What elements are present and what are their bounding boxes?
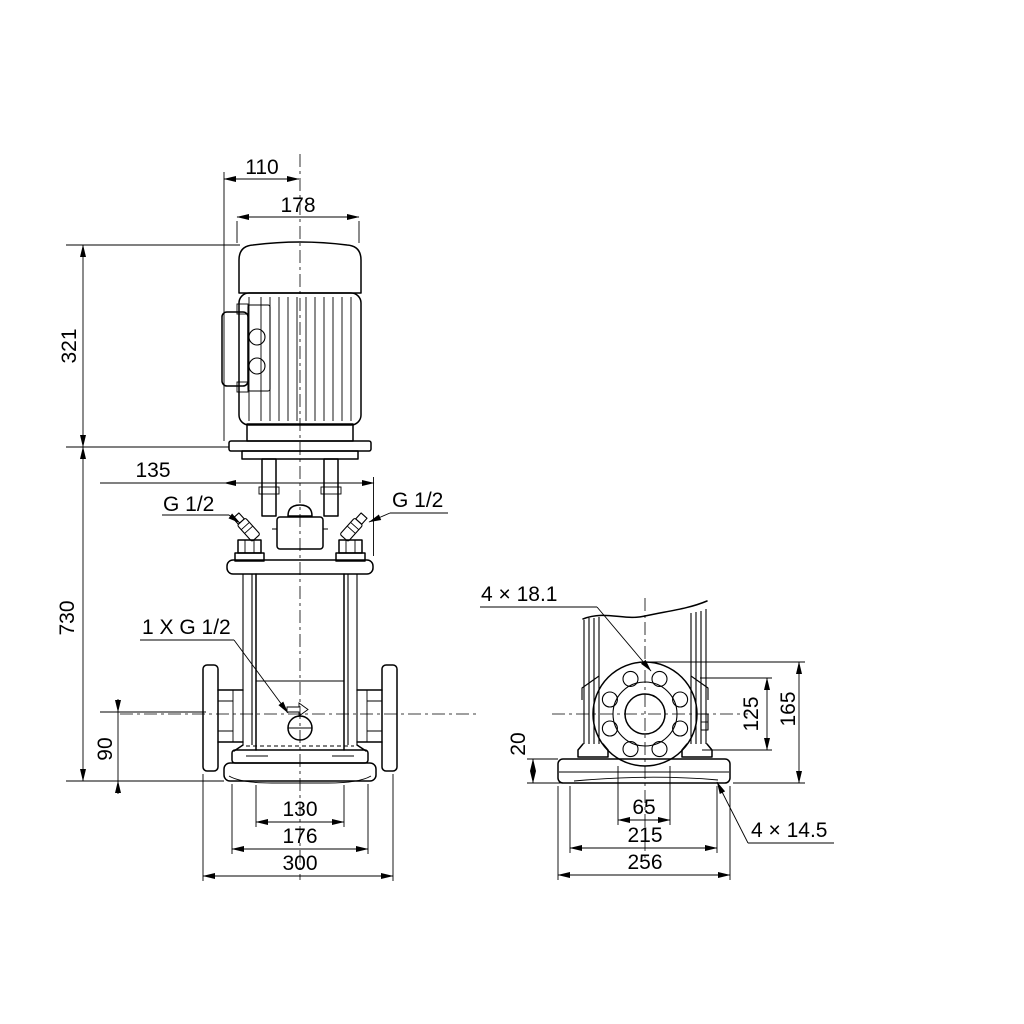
dim-135-text: 135 (135, 459, 170, 482)
vent-plug-right (340, 512, 368, 542)
terminal-box-body (248, 305, 270, 391)
side-view-dimensions: 4 × 18.1 20 125 165 65 215 256 4 × 14.5 (480, 583, 834, 880)
column-lines-left (584, 617, 599, 744)
dim-165-text: 165 (777, 691, 800, 726)
terminal-box-cover (222, 312, 248, 386)
side-base-skirt (574, 777, 718, 781)
dim-321-text: 321 (58, 328, 81, 363)
dim-178-text: 178 (280, 194, 315, 217)
flange-holes-label: 4 × 18.1 (481, 583, 557, 606)
dim-65-text: 65 (632, 796, 655, 819)
head-bolt-left (235, 540, 264, 561)
guard-column-right (324, 459, 338, 516)
front-view-dimensions: 110 178 321 730 90 135 G 1/2 G 1/2 1 X G… (56, 156, 448, 881)
ext-lines-20 (527, 759, 576, 783)
suction-nozzle-left (218, 690, 243, 742)
vent-left-label: G 1/2 (163, 493, 214, 516)
ext-lines-178 (237, 221, 359, 243)
dim-300-text: 300 (282, 852, 317, 875)
dim-125-text: 125 (740, 696, 763, 731)
dim-20-text: 20 (507, 732, 530, 755)
side-view (552, 598, 748, 858)
base-holes-label: 4 × 14.5 (751, 819, 827, 842)
guard-column-left (262, 459, 276, 516)
front-view (120, 154, 478, 880)
drain-label: 1 X G 1/2 (142, 616, 231, 639)
dim-176-text: 176 (282, 825, 317, 848)
drain-leader (234, 640, 288, 713)
dim-256-text: 256 (627, 851, 662, 874)
base-holes-leader (717, 782, 748, 843)
side-base-plate (558, 759, 730, 783)
drawing-page: 110 178 321 730 90 135 G 1/2 G 1/2 1 X G… (0, 0, 1024, 1024)
dim-130-text: 130 (282, 798, 317, 821)
discharge-nozzle-right (357, 690, 382, 742)
dim-110-text: 110 (245, 156, 278, 179)
dim-215-text: 215 (627, 824, 662, 847)
vent-right-leader (369, 513, 390, 522)
dim-90-text: 90 (94, 737, 117, 760)
motor-fins (261, 297, 342, 421)
dim-730-text: 730 (56, 600, 79, 635)
vent-plug-left (232, 512, 260, 542)
pipe-flange-left (203, 665, 218, 771)
head-bolt-right (336, 540, 365, 561)
cable-entry-bottom (249, 358, 265, 374)
vent-right-label: G 1/2 (392, 489, 443, 512)
pump-dimensional-drawing: 110 178 321 730 90 135 G 1/2 G 1/2 1 X G… (0, 0, 1024, 1024)
column-lines-right (691, 609, 706, 744)
pipe-flange-right (382, 665, 397, 771)
cable-entry-top (249, 329, 265, 345)
